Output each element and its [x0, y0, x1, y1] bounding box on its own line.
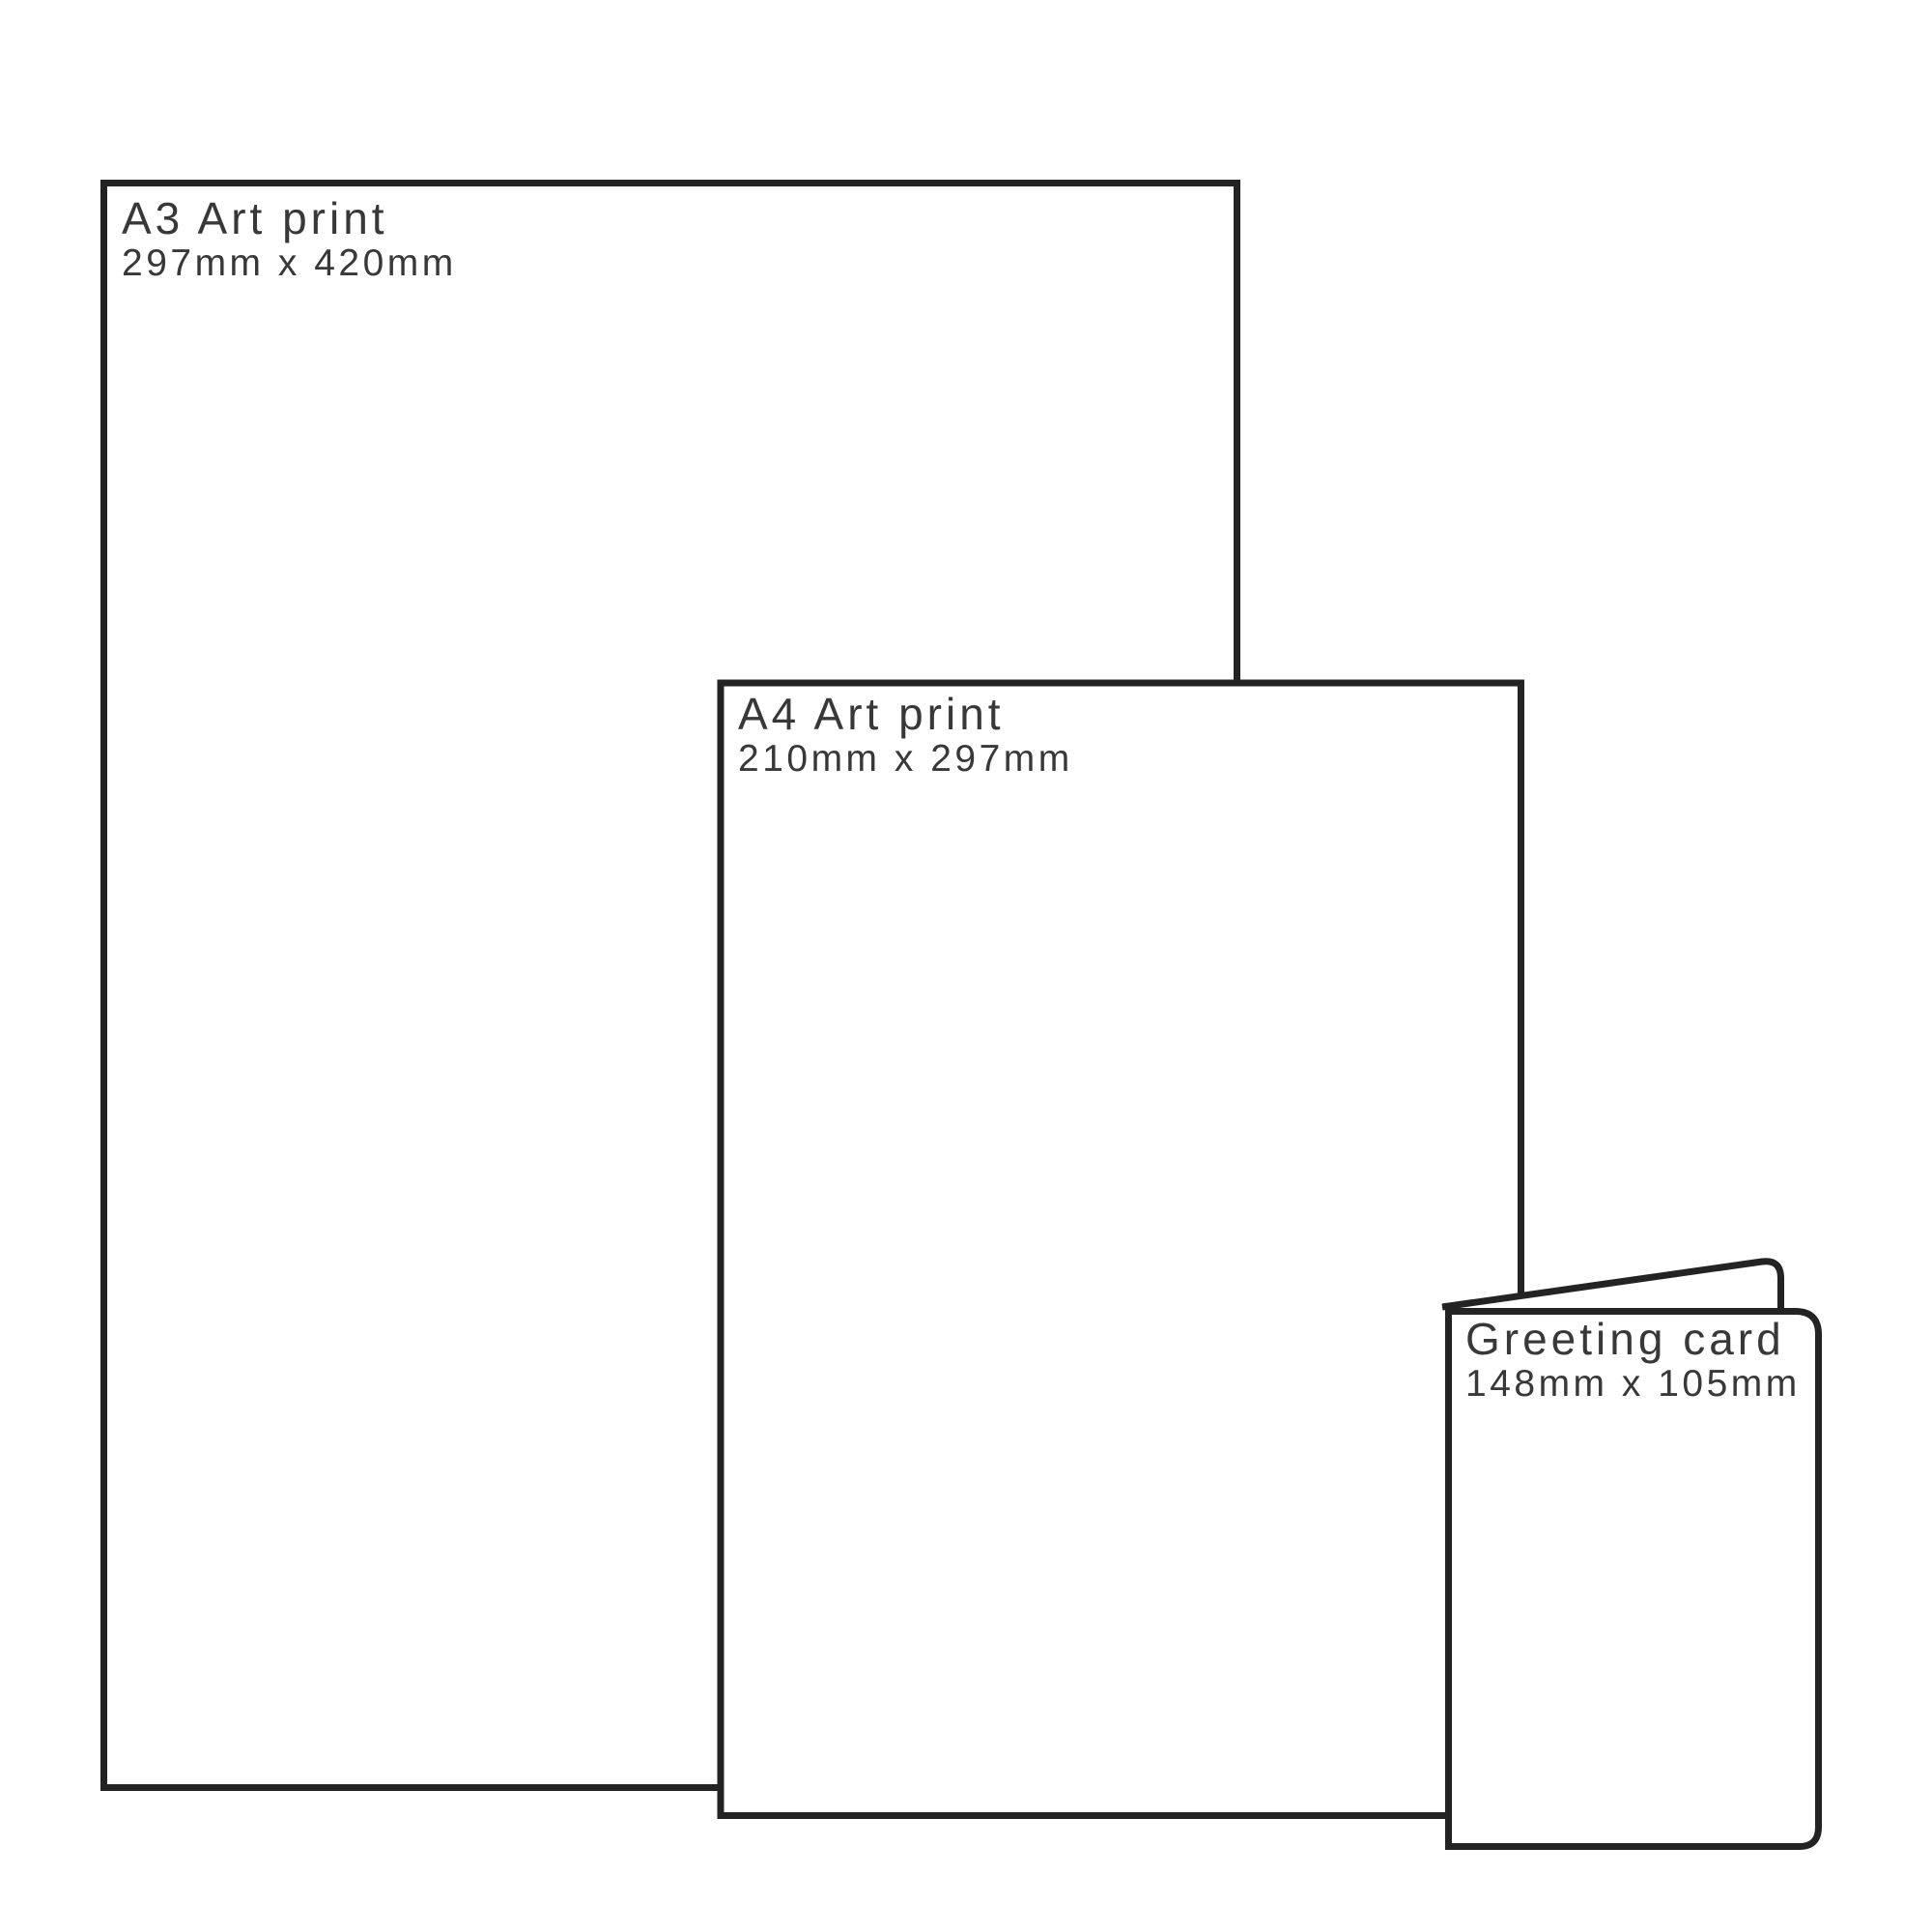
- greeting-card-dimensions: 148mm x 105mm: [1465, 1362, 1801, 1406]
- a4-print-outline: [721, 683, 1521, 1816]
- greeting-card-title: Greeting card: [1465, 1316, 1801, 1362]
- a4-print-dimensions: 210mm x 297mm: [738, 737, 1073, 781]
- a3-print-title: A3 Art print: [122, 195, 457, 241]
- size-comparison-diagram: A3 Art print 297mm x 420mm A4 Art print …: [0, 0, 1932, 1932]
- a4-print-label: A4 Art print 210mm x 297mm: [738, 691, 1073, 781]
- a3-print-dimensions: 297mm x 420mm: [122, 241, 457, 286]
- a4-print-title: A4 Art print: [738, 691, 1073, 737]
- greeting-card-label: Greeting card 148mm x 105mm: [1465, 1316, 1801, 1406]
- diagram-canvas: [0, 0, 1932, 1932]
- a3-print-label: A3 Art print 297mm x 420mm: [122, 195, 457, 286]
